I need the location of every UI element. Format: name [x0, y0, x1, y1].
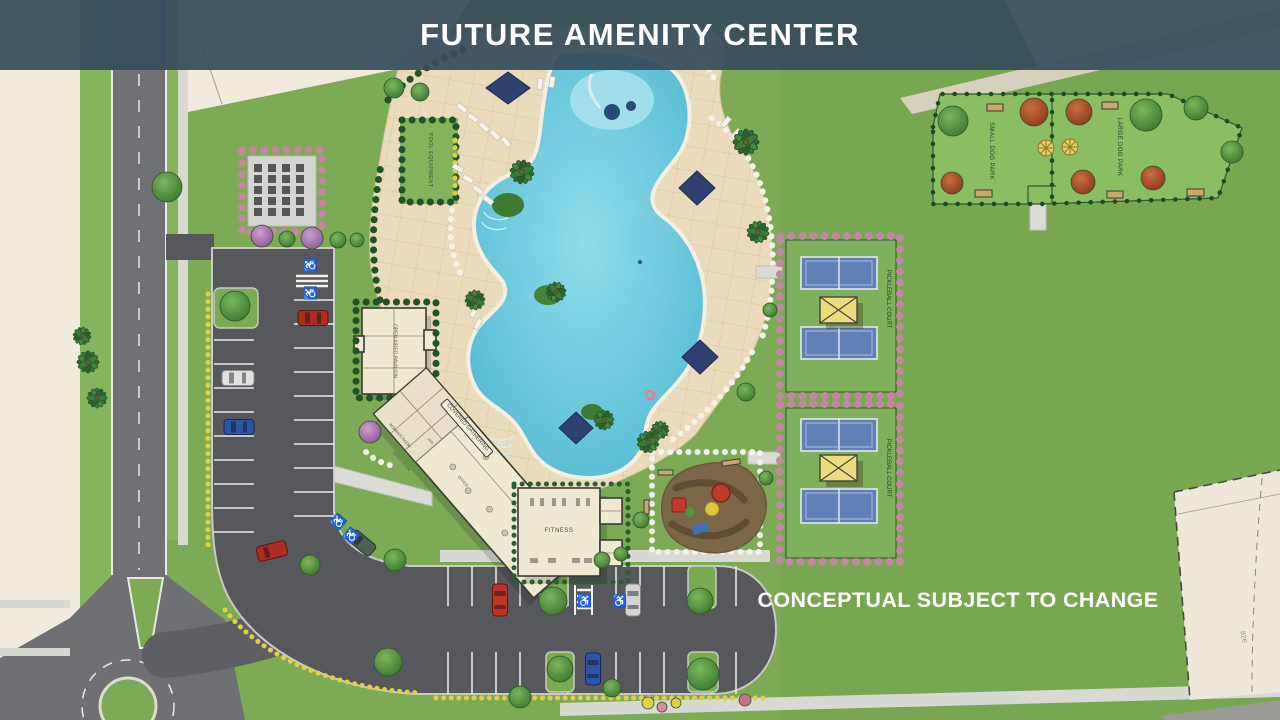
handicap-icon: ♿ — [612, 594, 627, 608]
parcel-826 — [1174, 470, 1280, 700]
label-fitness: FITNESS — [545, 528, 574, 534]
label-small-dog-park: SMALL DOG PARK — [988, 122, 994, 180]
garden-plots — [242, 150, 322, 232]
site-plan: FUTURE AMENITY CENTER CONCEPTUAL SUBJECT… — [0, 0, 1280, 720]
handicap-icon: ♿ — [577, 594, 592, 608]
label-large-dog-park: LARGE DOG PARK — [1116, 118, 1122, 177]
label-pickleball-south: PICKLEBALL COURT — [885, 439, 891, 498]
label-pool-equipment: POOL EQUIPMENT — [426, 133, 432, 188]
disclaimer-text: CONCEPTUAL SUBJECT TO CHANGE — [745, 588, 1171, 613]
label-open-aired-pavilion: OPEN AIRED PAVILION — [392, 324, 397, 378]
page-title: FUTURE AMENITY CENTER — [420, 17, 860, 53]
title-banner: FUTURE AMENITY CENTER — [0, 0, 1280, 70]
pickleball-south — [780, 404, 900, 562]
handicap-icon: ♿ — [303, 258, 317, 273]
handicap-icon: ♿ — [303, 286, 317, 301]
label-pickleball-north: PICKLEBALL COURT — [885, 270, 891, 329]
pickleball-north — [780, 236, 900, 396]
